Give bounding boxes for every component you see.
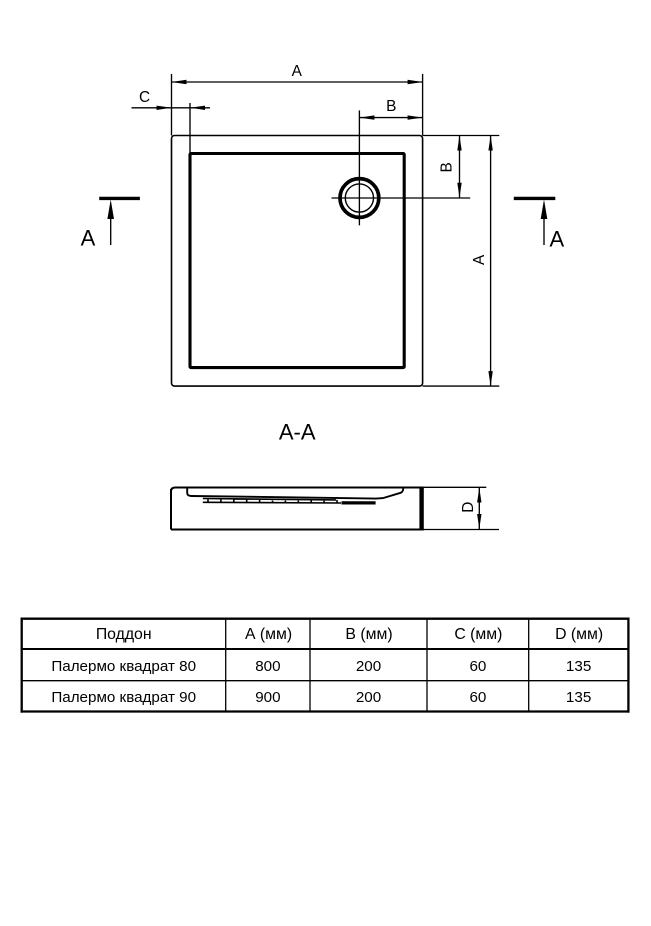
svg-text:A: A: [292, 63, 303, 80]
svg-text:60: 60: [469, 658, 486, 675]
svg-text:А (мм): А (мм): [245, 626, 292, 643]
svg-text:D (мм): D (мм): [555, 626, 603, 643]
svg-text:200: 200: [356, 658, 381, 675]
svg-text:Палермо квадрат 90: Палермо квадрат 90: [51, 689, 196, 706]
svg-text:A: A: [549, 227, 564, 252]
svg-text:60: 60: [469, 689, 486, 706]
svg-text:Поддон: Поддон: [96, 626, 152, 643]
svg-text:135: 135: [566, 658, 591, 675]
svg-text:Палермо квадрат 80: Палермо квадрат 80: [51, 658, 196, 675]
svg-text:A: A: [471, 254, 488, 265]
svg-text:B: B: [439, 162, 456, 172]
svg-text:С (мм): С (мм): [454, 626, 502, 643]
svg-text:C: C: [139, 89, 150, 106]
svg-text:A-A: A-A: [279, 420, 316, 445]
svg-text:200: 200: [356, 689, 381, 706]
svg-text:900: 900: [255, 689, 280, 706]
svg-text:800: 800: [255, 658, 280, 675]
svg-text:D: D: [460, 502, 477, 513]
svg-text:135: 135: [566, 689, 591, 706]
svg-text:A: A: [81, 226, 96, 251]
svg-text:В (мм): В (мм): [345, 626, 392, 643]
svg-text:B: B: [386, 98, 396, 115]
